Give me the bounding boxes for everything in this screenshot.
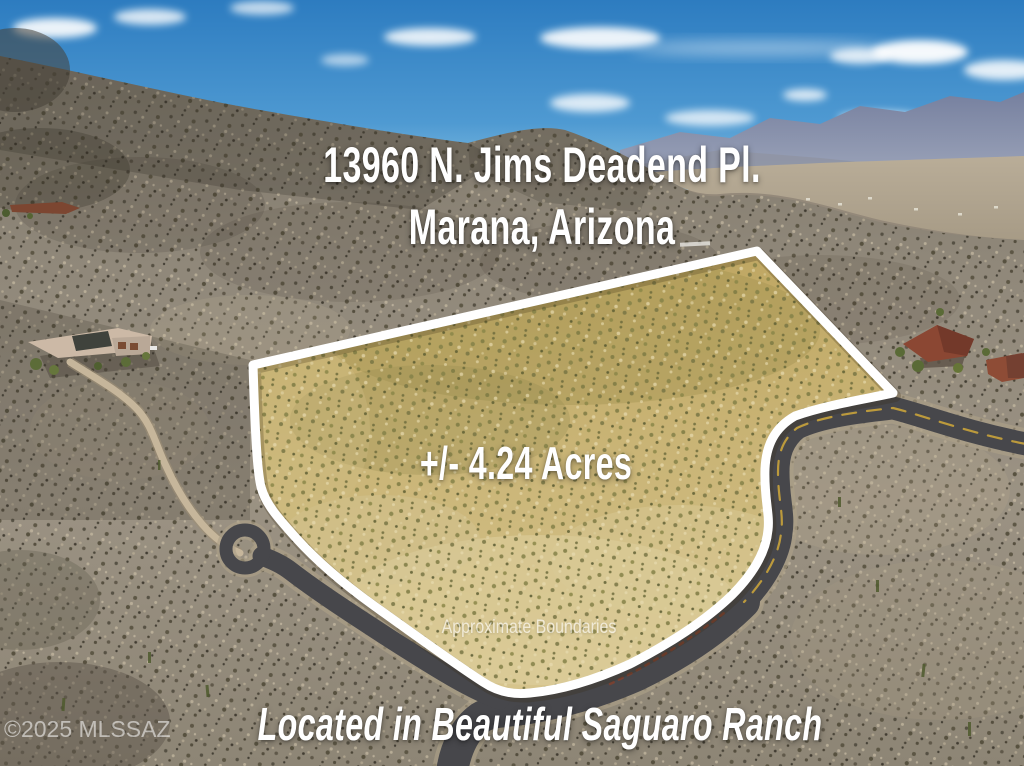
boundaries-note: Approximate Boundaries — [442, 617, 617, 639]
property-title: 13960 N. Jims Deadend Pl. Marana, Arizon… — [323, 134, 760, 258]
property-address: 13960 N. Jims Deadend Pl. — [323, 134, 760, 196]
aerial-photo-canvas — [0, 0, 1024, 766]
aerial-photo: 13960 N. Jims Deadend Pl. Marana, Arizon… — [0, 0, 1024, 766]
property-city-state: Marana, Arizona — [323, 196, 760, 258]
watermark: ©2025 MLSSAZ — [4, 716, 171, 743]
tagline: Located in Beautiful Saguaro Ranch — [258, 697, 823, 751]
acreage-label: +/- 4.24 Acres — [420, 436, 632, 490]
